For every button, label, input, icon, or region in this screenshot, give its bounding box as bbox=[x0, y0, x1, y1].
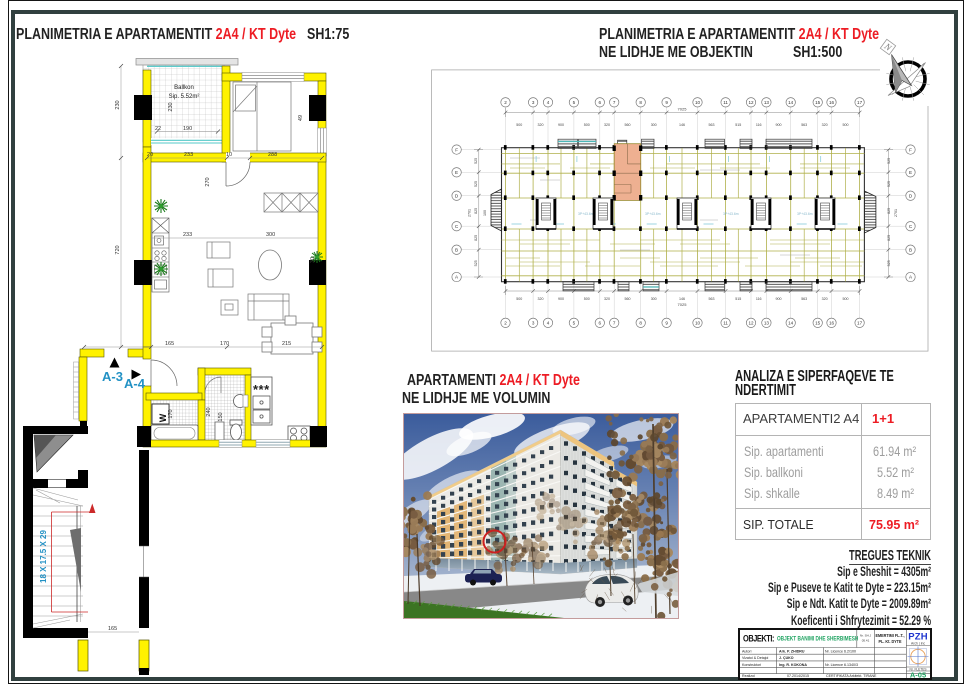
svg-text:6: 6 bbox=[599, 100, 602, 105]
svg-text:7: 7 bbox=[613, 321, 616, 326]
svg-text:14: 14 bbox=[788, 321, 794, 326]
svg-text:900: 900 bbox=[776, 297, 782, 301]
svg-text:560: 560 bbox=[625, 297, 631, 301]
svg-text:16: 16 bbox=[829, 100, 835, 105]
svg-text:9: 9 bbox=[665, 321, 668, 326]
svg-text:300: 300 bbox=[651, 297, 657, 301]
svg-text:F: F bbox=[455, 147, 458, 152]
svg-text:9: 9 bbox=[665, 100, 668, 105]
svg-text:3P+43.6m: 3P+43.6m bbox=[578, 212, 594, 216]
svg-text:12: 12 bbox=[748, 100, 754, 105]
svg-text:F: F bbox=[909, 147, 912, 152]
svg-text:2: 2 bbox=[504, 100, 507, 105]
svg-text:7: 7 bbox=[613, 100, 616, 105]
svg-text:13: 13 bbox=[764, 100, 770, 105]
svg-text:15: 15 bbox=[815, 100, 821, 105]
svg-text:7025: 7025 bbox=[678, 302, 688, 307]
svg-text:2701: 2701 bbox=[468, 209, 472, 217]
svg-text:3P+43.6m: 3P+43.6m bbox=[797, 212, 813, 216]
svg-text:500: 500 bbox=[516, 123, 522, 127]
svg-text:515: 515 bbox=[735, 297, 741, 301]
svg-text:300: 300 bbox=[651, 123, 657, 127]
svg-text:12: 12 bbox=[748, 321, 754, 326]
svg-text:17: 17 bbox=[857, 321, 863, 326]
svg-text:320: 320 bbox=[604, 123, 610, 127]
svg-text:3P+43.6m: 3P+43.6m bbox=[723, 212, 739, 216]
svg-text:320: 320 bbox=[538, 123, 544, 127]
svg-text:320: 320 bbox=[604, 297, 610, 301]
svg-text:10: 10 bbox=[695, 321, 701, 326]
svg-text:2: 2 bbox=[504, 321, 507, 326]
svg-text:116: 116 bbox=[756, 297, 762, 301]
svg-text:525: 525 bbox=[474, 181, 478, 187]
svg-text:E: E bbox=[909, 170, 912, 175]
svg-text:560: 560 bbox=[625, 123, 631, 127]
svg-text:8: 8 bbox=[639, 321, 642, 326]
svg-text:3P+43.6m: 3P+43.6m bbox=[645, 212, 661, 216]
svg-text:525: 525 bbox=[887, 260, 891, 266]
svg-text:3: 3 bbox=[532, 321, 535, 326]
svg-text:900: 900 bbox=[558, 123, 564, 127]
svg-text:320: 320 bbox=[822, 297, 828, 301]
svg-text:3: 3 bbox=[532, 100, 535, 105]
svg-text:900: 900 bbox=[776, 123, 782, 127]
svg-text:900: 900 bbox=[558, 297, 564, 301]
svg-text:500: 500 bbox=[843, 297, 849, 301]
svg-text:525: 525 bbox=[887, 158, 891, 164]
svg-text:11: 11 bbox=[723, 100, 728, 105]
svg-text:16: 16 bbox=[829, 321, 835, 326]
svg-text:146: 146 bbox=[679, 297, 685, 301]
svg-text:525: 525 bbox=[474, 158, 478, 164]
svg-text:100: 100 bbox=[483, 210, 487, 216]
svg-text:17: 17 bbox=[857, 100, 863, 105]
svg-text:7025: 7025 bbox=[678, 107, 688, 112]
svg-text:13: 13 bbox=[764, 321, 770, 326]
svg-text:5: 5 bbox=[573, 100, 576, 105]
svg-text:500: 500 bbox=[584, 123, 590, 127]
svg-text:11: 11 bbox=[723, 321, 728, 326]
svg-text:8: 8 bbox=[639, 100, 642, 105]
svg-text:500: 500 bbox=[584, 297, 590, 301]
svg-text:563: 563 bbox=[801, 123, 807, 127]
svg-text:825: 825 bbox=[474, 235, 478, 241]
svg-text:4: 4 bbox=[547, 100, 550, 105]
svg-text:525: 525 bbox=[887, 181, 891, 187]
svg-text:515: 515 bbox=[735, 123, 741, 127]
svg-text:14: 14 bbox=[788, 100, 794, 105]
svg-text:15: 15 bbox=[815, 321, 821, 326]
svg-text:320: 320 bbox=[538, 297, 544, 301]
svg-text:525: 525 bbox=[474, 260, 478, 266]
svg-text:146: 146 bbox=[679, 123, 685, 127]
svg-text:5: 5 bbox=[573, 321, 576, 326]
svg-text:4: 4 bbox=[547, 321, 550, 326]
svg-text:116: 116 bbox=[756, 123, 762, 127]
svg-text:825: 825 bbox=[887, 235, 891, 241]
svg-text:E: E bbox=[455, 170, 458, 175]
svg-text:10: 10 bbox=[695, 100, 701, 105]
svg-text:6: 6 bbox=[599, 321, 602, 326]
svg-text:563: 563 bbox=[709, 297, 715, 301]
svg-text:500: 500 bbox=[516, 297, 522, 301]
svg-text:825: 825 bbox=[887, 208, 891, 214]
svg-text:B: B bbox=[455, 247, 458, 252]
svg-text:2701: 2701 bbox=[894, 209, 898, 217]
svg-text:563: 563 bbox=[709, 123, 715, 127]
svg-text:500: 500 bbox=[843, 123, 849, 127]
svg-text:825: 825 bbox=[474, 208, 478, 214]
svg-text:B: B bbox=[909, 247, 912, 252]
svg-text:563: 563 bbox=[801, 297, 807, 301]
svg-text:320: 320 bbox=[822, 123, 828, 127]
